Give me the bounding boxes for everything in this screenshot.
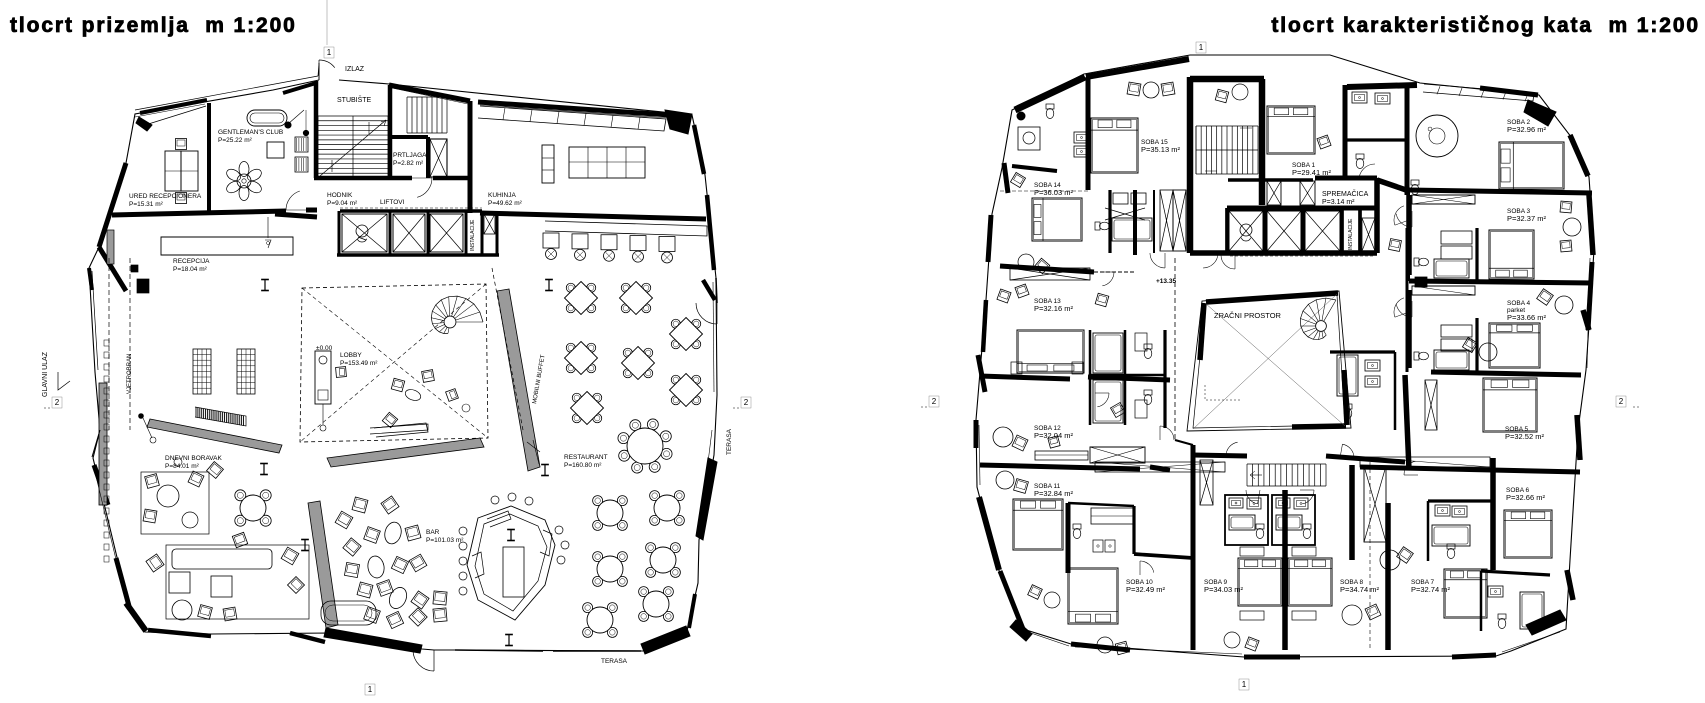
svg-text:P=9.04 m²: P=9.04 m² [327,200,358,207]
svg-text:TERASA: TERASA [601,658,628,665]
svg-text:ZRAČNI PROSTOR: ZRAČNI PROSTOR [1214,311,1282,320]
svg-text:tlocrt karakterističnog kata: tlocrt karakterističnog kata m 1:200 [1271,14,1700,37]
svg-text:INSTALACIJE: INSTALACIJE [470,219,476,251]
svg-text:SOBA 4: SOBA 4 [1507,300,1531,307]
svg-text:1: 1 [327,48,332,57]
svg-text:LOBBY: LOBBY [340,352,362,359]
svg-text:P=3.14 m²: P=3.14 m² [1322,199,1355,206]
svg-text:P=36.03 m²: P=36.03 m² [1034,188,1073,197]
svg-text:P=32.37 m²: P=32.37 m² [1507,214,1546,223]
svg-text:TERASA: TERASA [726,428,733,455]
svg-text:tlocrt prizemlja m 1:200: tlocrt prizemlja m 1:200 [10,14,297,37]
svg-text:P=32.52 m²: P=32.52 m² [1505,432,1544,441]
svg-text:2: 2 [55,398,60,407]
svg-text:P=32.84 m²: P=32.84 m² [1034,489,1073,498]
svg-text:RESTAURANT: RESTAURANT [564,454,608,461]
svg-text:P=84.01 m²: P=84.01 m² [165,463,200,470]
svg-text:P=101.03 m²: P=101.03 m² [426,537,464,544]
svg-text:P=49.62 m²: P=49.62 m² [488,200,523,207]
svg-text:SPREMAČICA: SPREMAČICA [1322,189,1369,198]
svg-text:P=34.74 m²: P=34.74 m² [1340,585,1379,594]
svg-text:LIFTOVI: LIFTOVI [380,199,405,206]
svg-text:1: 1 [1199,43,1204,52]
svg-text:1: 1 [1242,680,1247,689]
svg-text:MOBILNI BUFFET: MOBILNI BUFFET [532,354,547,404]
svg-text:GLAVNI ULAZ: GLAVNI ULAZ [42,351,49,397]
svg-text:P=33.66 m²: P=33.66 m² [1507,313,1546,322]
svg-text:2: 2 [1619,397,1624,406]
svg-text:URED RECEPCIONERA: URED RECEPCIONERA [129,193,202,200]
svg-text:P=32.66 m²: P=32.66 m² [1506,493,1545,502]
svg-text:STUBIŠTE: STUBIŠTE [337,95,372,104]
svg-text:P=29.41 m²: P=29.41 m² [1292,168,1331,177]
svg-text:P=32.16 m²: P=32.16 m² [1034,304,1073,313]
svg-text:2: 2 [932,397,937,406]
svg-text:HODNIK: HODNIK [327,192,353,199]
svg-text:P=18.04 m²: P=18.04 m² [173,266,208,273]
svg-text:P=2.82 m²: P=2.82 m² [393,160,424,167]
svg-text:+13.35: +13.35 [1156,278,1176,285]
svg-text:DNEVNI BORAVAK: DNEVNI BORAVAK [165,455,222,462]
svg-text:P=160.80 m²: P=160.80 m² [564,462,602,469]
svg-text:RECEPCIJA: RECEPCIJA [173,258,210,265]
svg-text:P=32.74 m²: P=32.74 m² [1411,585,1450,594]
svg-text:P=153.49 m²: P=153.49 m² [340,360,378,367]
svg-text:IZLAZ: IZLAZ [345,66,365,73]
svg-text:INSTALACIJE: INSTALACIJE [1348,218,1354,250]
svg-text:P=15.31 m²: P=15.31 m² [129,201,164,208]
svg-text:1: 1 [368,685,373,694]
svg-text:P=34.03 m²: P=34.03 m² [1204,585,1243,594]
svg-text:P=32.96 m²: P=32.96 m² [1507,125,1546,134]
svg-text:P=25.22 m²: P=25.22 m² [218,137,253,144]
svg-text:2: 2 [744,398,749,407]
svg-text:GENTLEMAN'S CLUB: GENTLEMAN'S CLUB [218,129,283,136]
svg-text:BAR: BAR [426,529,440,536]
svg-text:P=32.04 m²: P=32.04 m² [1034,431,1073,440]
svg-text:KUHINJA: KUHINJA [488,192,516,199]
svg-text:PRTLJAGA: PRTLJAGA [393,152,427,159]
svg-text:P=32.49 m²: P=32.49 m² [1126,585,1165,594]
svg-text:P=35.13 m²: P=35.13 m² [1141,145,1180,154]
